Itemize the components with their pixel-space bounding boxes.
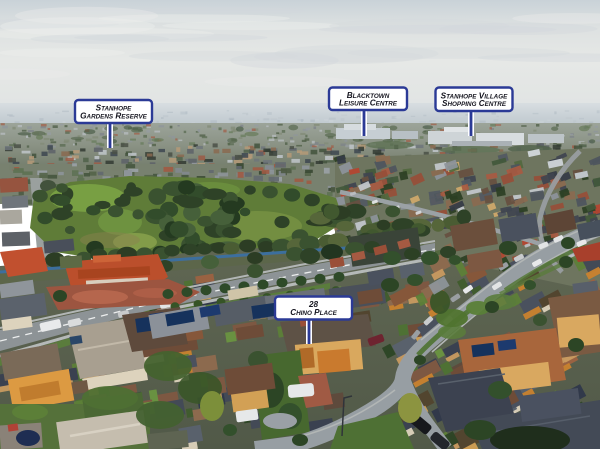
svg-text:STANHOPE VILLAGE: STANHOPE VILLAGE — [441, 92, 508, 101]
svg-text:SHOPPING CENTRE: SHOPPING CENTRE — [442, 99, 507, 108]
svg-text:CHINO PLACE: CHINO PLACE — [290, 308, 337, 317]
svg-text:LEISURE CENTRE: LEISURE CENTRE — [339, 99, 398, 108]
svg-text:GARDENS RESERVE: GARDENS RESERVE — [80, 111, 148, 120]
